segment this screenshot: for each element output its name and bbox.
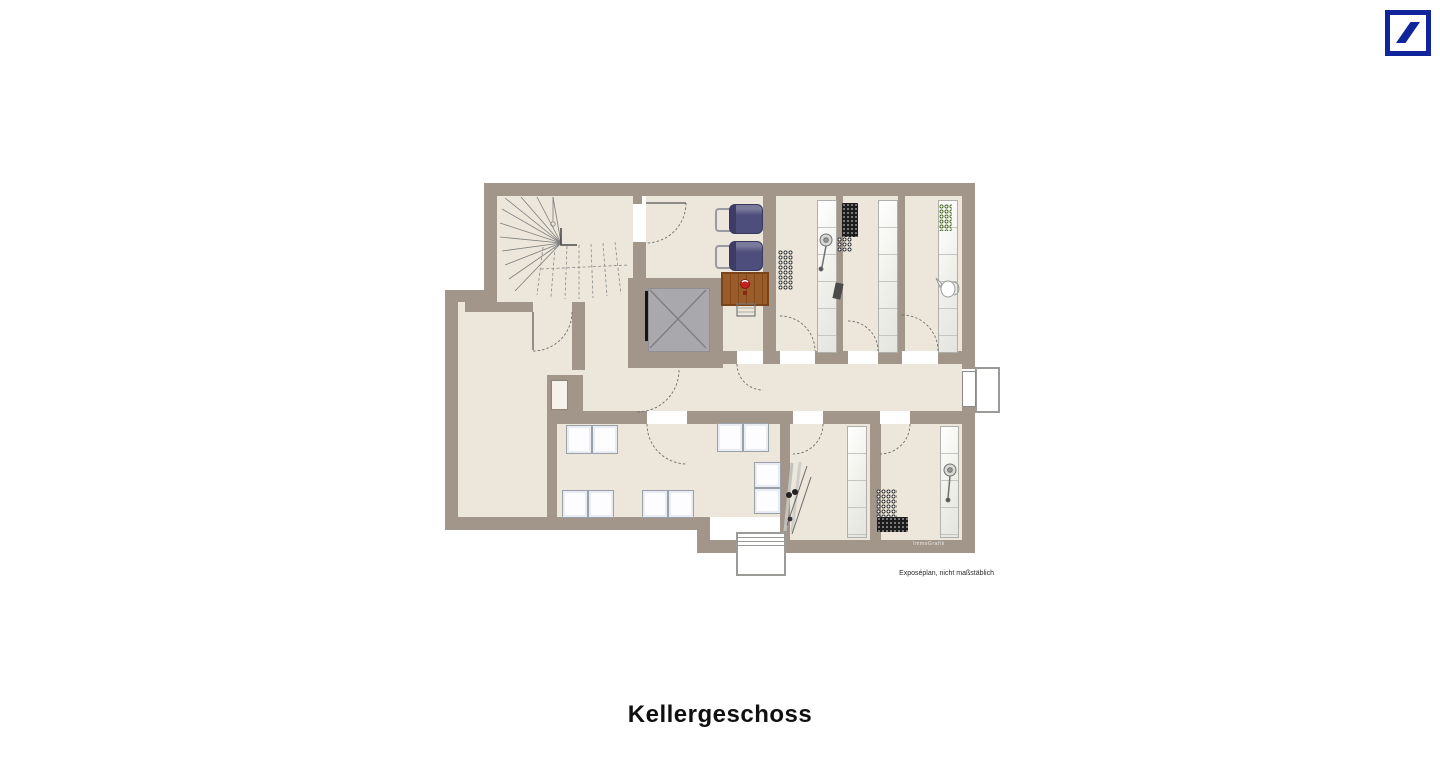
wall-corridor-south-1 [547, 411, 647, 424]
elevator-car [648, 288, 710, 352]
washing-machine-icon [754, 462, 781, 488]
storage-shelf-d [847, 426, 867, 538]
washing-machine-icon [642, 490, 668, 518]
wall-pramhall-west [633, 242, 646, 280]
storage-shelf-b [878, 200, 898, 353]
washing-machine-icon [592, 425, 618, 454]
stair-hall-floor [497, 196, 633, 302]
wall-niche [551, 380, 568, 410]
corridor-floor [557, 364, 962, 411]
elevator-door [645, 291, 648, 341]
wall-top [484, 183, 975, 196]
deutsche-bank-logo [1385, 10, 1431, 56]
washing-machine-icon [754, 488, 781, 514]
wall-storage-bc [898, 196, 905, 351]
deutsche-bank-slash-icon [1385, 10, 1431, 56]
wall-right-lower [962, 407, 975, 553]
wall-right-upper [962, 183, 975, 369]
wall-pramhall-south [723, 351, 737, 364]
wall-laundry-east [780, 411, 790, 540]
left-room-floor [458, 302, 547, 517]
watermark: ImmoGrafik [893, 541, 965, 547]
floorplan: ImmoGrafik [445, 183, 997, 577]
wall-corridor-south-3 [823, 411, 880, 424]
wall-storage-south-1 [776, 351, 780, 364]
exterior-stairs-icon [736, 532, 786, 576]
washing-machine-icon [717, 423, 743, 452]
plan-disclaimer: Exposéplan, nicht maßstäblich [858, 570, 994, 577]
wall-left [445, 290, 458, 530]
storage-shelf-a [817, 200, 837, 353]
exterior-stairs-steps [738, 534, 784, 547]
exterior-door-right [962, 371, 976, 407]
workbench-icon [721, 272, 769, 306]
bottle-crate-icon [778, 250, 793, 290]
wall-bottom-left [445, 517, 710, 530]
bottle-crate-icon [837, 237, 852, 252]
wall-upper-left [484, 183, 497, 302]
pram-icon [729, 241, 763, 271]
washing-machine-icon [562, 490, 588, 518]
washing-machine-icon [668, 490, 694, 518]
wall-stair-south [465, 302, 533, 312]
bottle-crate-dark-icon [877, 517, 908, 532]
hall-neck-floor [585, 302, 633, 370]
wall-leftroom-east [547, 421, 557, 517]
wall-neck-west [572, 302, 585, 370]
washing-machine-icon [588, 490, 614, 518]
pram-icon [729, 204, 763, 234]
bottle-crate-dark-icon [842, 203, 858, 237]
bottle-crate-green-icon [939, 204, 952, 231]
page-title: Kellergeschoss [0, 701, 1440, 729]
wall-pramhall-west-stub [633, 196, 642, 204]
wall-corridor-south-4 [910, 411, 962, 424]
washing-machine-icon [743, 423, 769, 452]
door-landing-icon [975, 367, 1000, 413]
page: ImmoGrafik Exposéplan, nicht maßstäblich… [0, 0, 1440, 762]
storage-shelf-e [940, 426, 959, 538]
washing-machine-icon [566, 425, 592, 454]
bottle-crate-icon [876, 489, 897, 517]
